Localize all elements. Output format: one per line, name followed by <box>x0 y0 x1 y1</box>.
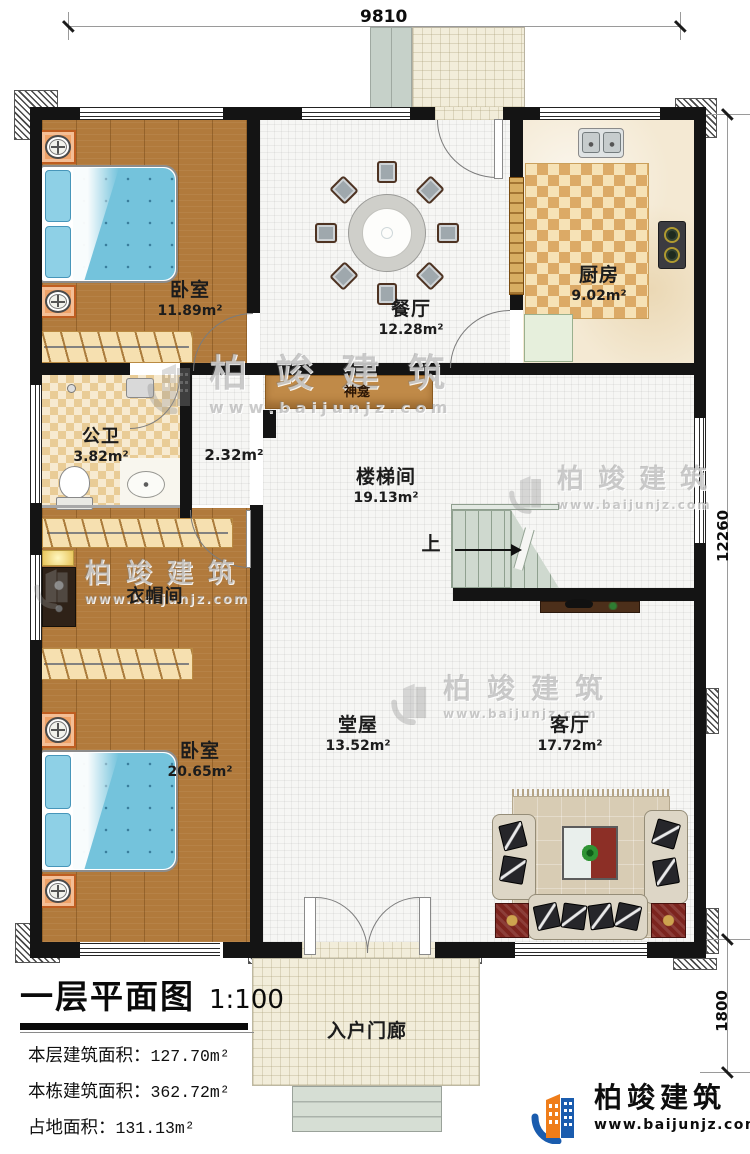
floor-plan: 卧室 11.89m² 餐厅 12.28m² 厨房 9.02m² 公卫 3.82m… <box>0 0 750 1154</box>
divider <box>20 1032 254 1033</box>
nightstand <box>40 712 76 748</box>
room-area: 3.82m² <box>73 449 128 467</box>
wall <box>30 363 130 375</box>
door-leaf <box>494 119 503 179</box>
brand-logo: 柏竣建筑 www.baijunjz.com <box>530 1084 750 1144</box>
toilet-tank <box>56 497 93 510</box>
info-row: 本栋建筑面积：362.72m² <box>28 1078 284 1103</box>
wall <box>510 107 523 177</box>
lamp <box>45 879 71 903</box>
window <box>30 555 42 640</box>
wall <box>30 503 42 555</box>
wall <box>247 107 260 313</box>
floor-corridor <box>192 375 250 505</box>
info-value: 131.13m² <box>116 1119 195 1138</box>
room-name: 公卫 <box>73 426 128 449</box>
door-opening <box>435 107 503 120</box>
room-label-cloakroom: 衣帽间 <box>127 586 184 609</box>
wardrobe <box>40 331 193 363</box>
wall <box>510 295 523 310</box>
burner <box>664 227 680 243</box>
window <box>302 107 410 120</box>
wall <box>223 107 302 120</box>
room-label-bathroom: 公卫 3.82m² <box>73 426 128 466</box>
sink-basin <box>582 132 600 153</box>
floor-drain <box>67 384 76 393</box>
bed-pillows <box>45 755 71 867</box>
wall <box>223 942 302 958</box>
floor-stair-strip <box>263 588 453 601</box>
kitchen-sink <box>578 128 624 158</box>
info-value: 362.72m² <box>151 1083 230 1102</box>
plant-small <box>607 602 619 610</box>
balcony-panel <box>370 27 412 108</box>
room-area: 17.72m² <box>537 738 602 756</box>
window <box>540 107 660 120</box>
wall <box>30 640 42 958</box>
room-name: 厨房 <box>571 264 626 288</box>
room-name: 衣帽间 <box>127 586 184 609</box>
dimension-value-right: 12260 <box>714 496 732 576</box>
dining-chair <box>377 161 397 183</box>
room-name: 卧室 <box>157 279 222 303</box>
stair-direction-line <box>455 549 513 551</box>
end-table <box>495 903 529 938</box>
wardrobe <box>40 648 193 680</box>
wall <box>410 107 435 120</box>
wall-pier-hatch <box>706 688 719 734</box>
lamp <box>45 135 71 159</box>
nightstand <box>40 130 76 164</box>
kitchen-pass-hatch <box>509 177 524 295</box>
room-label-entry-porch: 入户门廊 <box>327 1020 407 1044</box>
dressing-table <box>42 567 76 627</box>
bed-pillows <box>45 170 71 278</box>
wall <box>30 942 80 958</box>
plant <box>580 843 600 863</box>
room-area: 20.65m² <box>167 764 232 782</box>
label-shrine-area: 2.32m² <box>204 446 263 465</box>
bed <box>40 750 178 872</box>
room-label-hall: 堂屋 13.52m² <box>325 714 390 755</box>
burner <box>664 247 680 263</box>
toilet <box>59 466 90 499</box>
room-name: 堂屋 <box>325 714 390 738</box>
entry-door-leaf <box>304 897 316 955</box>
window <box>80 107 223 120</box>
wall <box>180 363 192 518</box>
end-table <box>651 903 686 938</box>
room-name: 客厅 <box>537 714 602 738</box>
room-area: 2.32m² <box>204 446 263 465</box>
room-name: 入户门廊 <box>327 1020 407 1044</box>
wall <box>30 107 42 385</box>
room-area: 13.52m² <box>325 738 390 756</box>
plan-scale: 1:100 <box>209 985 284 1015</box>
wall <box>435 942 515 958</box>
room-name: 卧室 <box>167 740 232 764</box>
room-area: 9.02m² <box>571 288 626 306</box>
room-label-stairwell: 楼梯间 19.13m² <box>353 466 418 507</box>
entry-door-leaf <box>419 897 431 955</box>
wall <box>694 543 706 958</box>
sink-basin <box>603 132 621 153</box>
room-area: 11.89m² <box>157 303 222 321</box>
kitchen-cabinet <box>524 314 573 362</box>
info-panel: 一层平面图 1:100 本层建筑面积：127.70m² 本栋建筑面积：362.7… <box>20 970 284 1154</box>
wall <box>180 363 706 375</box>
stair-arrow-head <box>511 544 522 556</box>
brand-website: www.baijunjz.com <box>594 1117 750 1133</box>
room-name: 餐厅 <box>378 298 443 322</box>
room-label-bedroom1: 卧室 11.89m² <box>157 279 222 320</box>
nightstand <box>40 874 76 908</box>
info-row: 占地面积：131.13m² <box>28 1114 284 1139</box>
wall-pier-hatch <box>706 908 719 954</box>
dimension-value-top: 9810 <box>360 7 407 27</box>
divider <box>20 1023 248 1030</box>
room-area: 19.13m² <box>353 490 418 508</box>
washbasin <box>127 471 165 498</box>
wall <box>250 505 263 942</box>
room-name: 楼梯间 <box>353 466 418 490</box>
sofa-loveseat <box>492 814 536 900</box>
dining-table-center <box>381 227 393 239</box>
info-row: 本层建筑面积：127.70m² <box>28 1042 284 1067</box>
partition-line <box>42 505 180 508</box>
bed <box>40 165 178 283</box>
lamp-cabinet <box>42 550 74 566</box>
sofa-chaise <box>644 810 688 904</box>
balcony-tile <box>412 27 525 108</box>
info-label: 本栋建筑面积： <box>28 1082 151 1102</box>
room-label-dining: 餐厅 12.28m² <box>378 298 443 339</box>
info-row: 层高：3.6m <box>28 1150 284 1154</box>
dining-chair <box>315 223 337 243</box>
lamp <box>45 290 71 313</box>
lamp <box>45 717 71 743</box>
nightstand <box>40 285 76 318</box>
label-shrine: 神龛 <box>344 385 370 401</box>
room-area: 12.28m² <box>378 322 443 340</box>
room-label-living: 客厅 17.72m² <box>537 714 602 755</box>
dimension-value-right-porch: 1800 <box>713 971 731 1051</box>
stove <box>658 221 686 269</box>
brand-logo-icon <box>530 1084 586 1144</box>
window <box>30 385 42 503</box>
rug-fringe <box>512 789 670 796</box>
room-label-bedroom2: 卧室 20.65m² <box>167 740 232 781</box>
tv <box>565 599 593 608</box>
stairs-up-label: 上 <box>421 533 440 557</box>
sofa-three-seat <box>528 894 648 940</box>
wall <box>647 942 706 958</box>
room-label-kitchen: 厨房 9.02m² <box>571 264 626 305</box>
window <box>80 943 220 956</box>
window <box>694 418 706 543</box>
info-value: 127.70m² <box>151 1047 230 1066</box>
window <box>515 943 647 956</box>
porch-steps <box>292 1086 442 1132</box>
wall-pier-hatch <box>673 958 717 970</box>
room-name: 神龛 <box>344 385 370 401</box>
info-label: 本层建筑面积： <box>28 1046 151 1066</box>
info-label: 占地面积： <box>28 1118 116 1138</box>
dining-chair <box>437 223 459 243</box>
wall <box>263 410 276 438</box>
door-leaf <box>246 510 251 568</box>
plan-title: 一层平面图 <box>20 970 195 1018</box>
brand-company: 柏竣建筑 <box>594 1084 750 1112</box>
